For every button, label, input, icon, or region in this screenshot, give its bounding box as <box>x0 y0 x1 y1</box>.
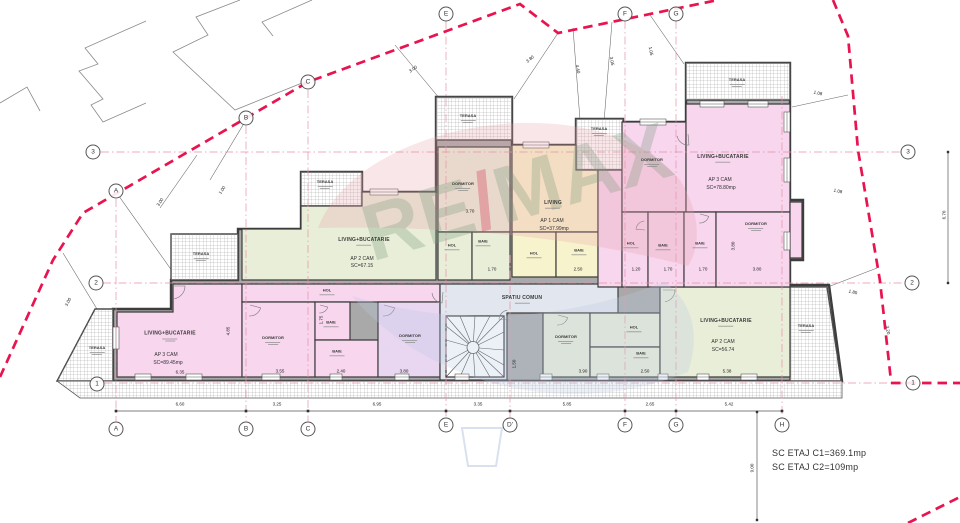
room <box>242 302 315 377</box>
room <box>242 284 440 302</box>
room <box>716 212 790 287</box>
room <box>790 202 802 258</box>
neighbor-buildings <box>0 0 312 122</box>
room <box>438 232 472 280</box>
room <box>472 232 510 280</box>
room <box>686 104 790 212</box>
note-sc-etaj-c1: SC ETAJ C1=369.1mp <box>772 446 866 460</box>
floor-plan-page: RE/MAX TERASALIVING+BUCATARIEAP 3 CAMSC=… <box>0 0 960 523</box>
area-notes: SC ETAJ C1=369.1mp SC ETAJ C2=109mp <box>772 446 866 474</box>
room <box>315 302 350 340</box>
room <box>315 340 378 377</box>
floor-plan-drawing <box>0 0 960 523</box>
room <box>117 284 242 377</box>
note-sc-etaj-c2: SC ETAJ C2=109mp <box>772 460 866 474</box>
